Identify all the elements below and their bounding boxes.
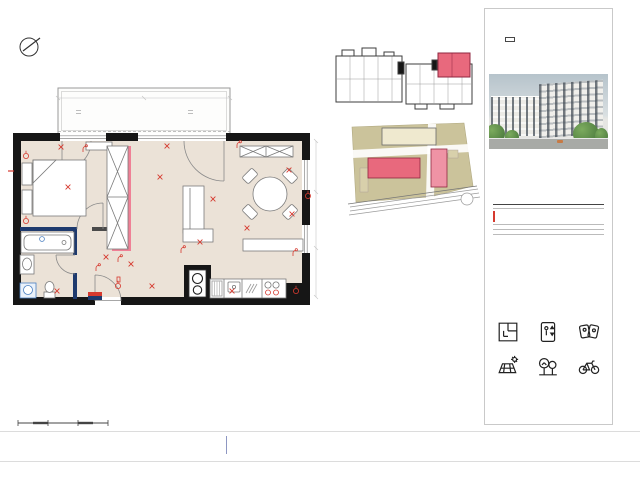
street-ground [489,138,608,149]
unit-info-panel [484,8,613,425]
unii-lubelskiej-logo [505,29,515,47]
estate-plan-drawing [348,123,480,215]
features-grid [488,321,609,379]
residents-club-icon [578,321,600,343]
bike-rack-icon [578,355,600,377]
logo-word-lubelskiej [505,37,515,42]
feature-floorplans [488,321,528,345]
footer-divider-top [0,431,640,432]
balcony-area-row [493,230,604,235]
feature-gardens [528,355,568,379]
floorplan-icon [497,321,519,343]
gardens-icon [537,355,559,377]
balcony-outline [56,88,232,134]
feature-solar [488,355,528,379]
situational-plan-drawing [336,48,472,109]
demolition-area-row [493,208,604,225]
feature-bikes [569,355,609,379]
feature-elevator [528,321,568,345]
red-bar-icon [493,211,495,222]
solar-panel-icon [497,355,519,377]
building-render-photo [489,74,608,149]
footer-separator [226,436,227,454]
scale-bar [18,420,108,426]
compass-icon [20,38,40,56]
plan-sheet [0,0,640,480]
elevator-icon [537,321,559,343]
feature-club [569,321,609,345]
car [557,140,563,143]
footer-divider-bottom [0,461,640,462]
area-table [493,203,604,237]
dimension-lines [314,139,318,299]
